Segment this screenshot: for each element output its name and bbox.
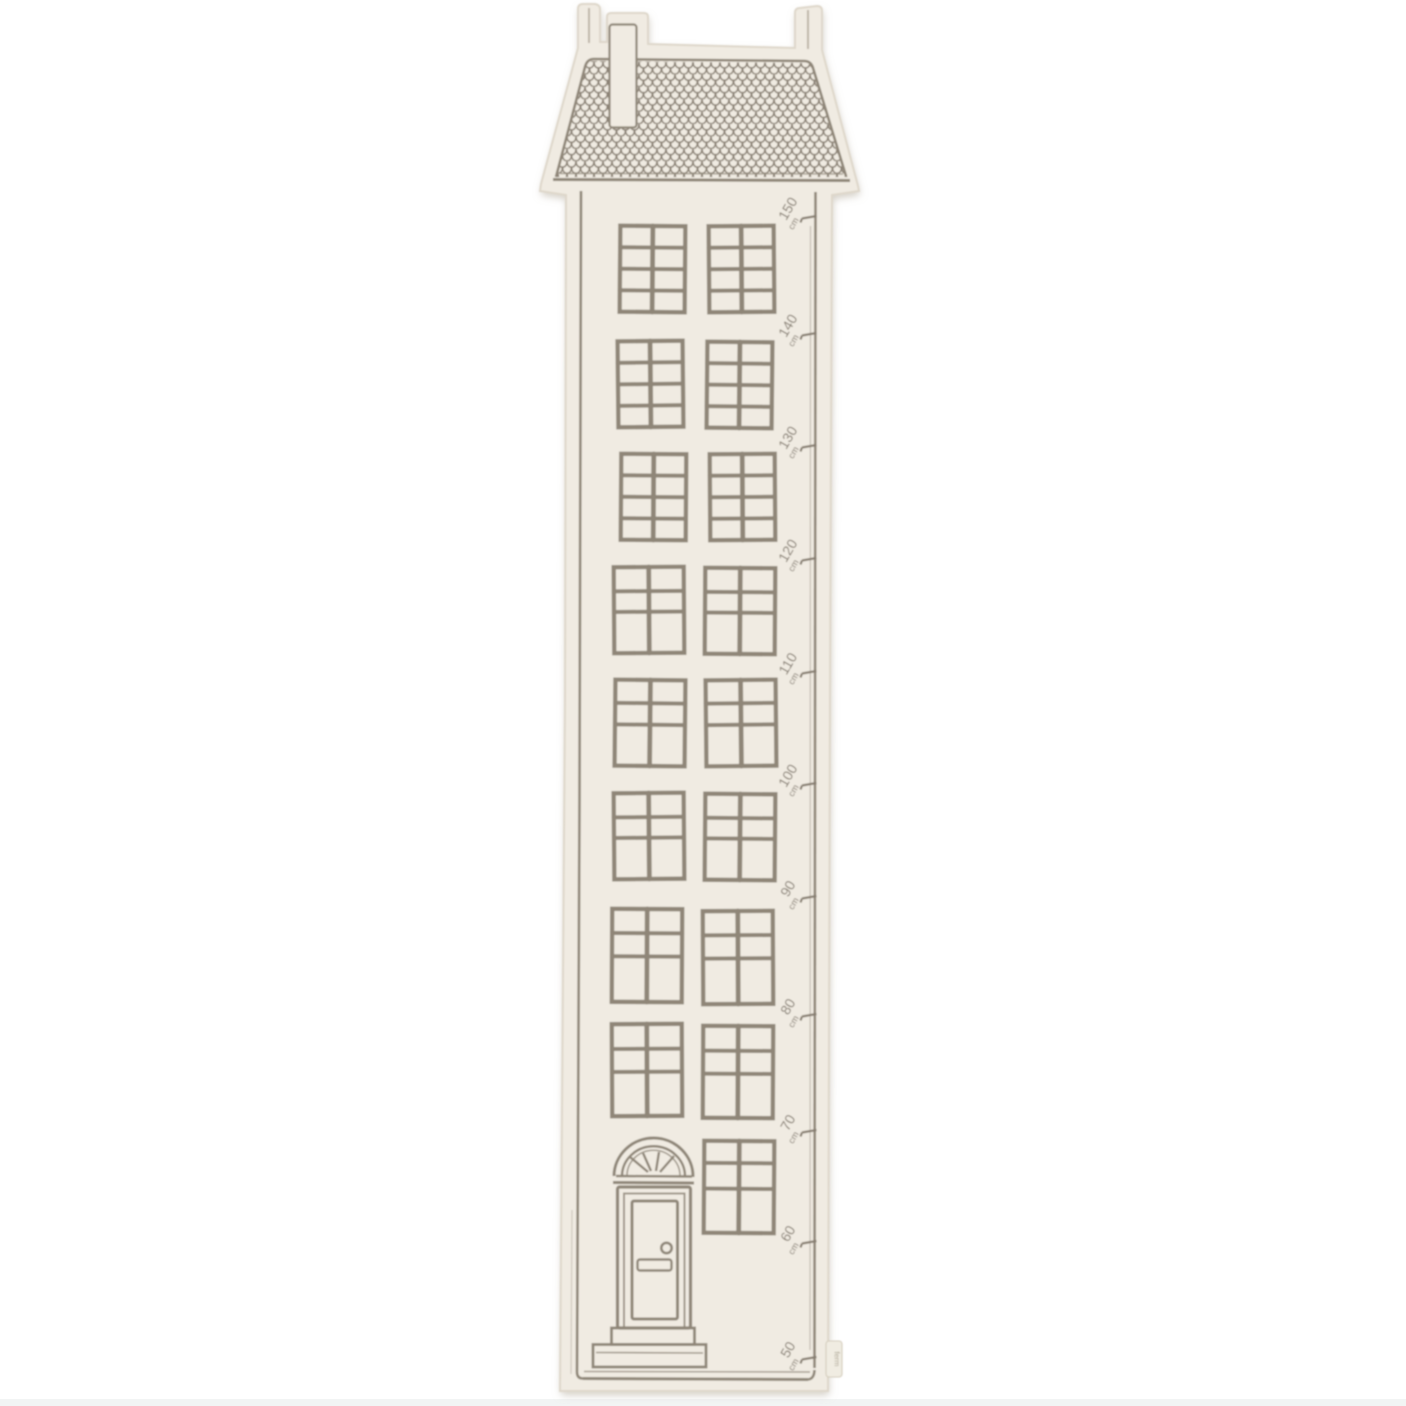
svg-text:ferm: ferm <box>833 1352 842 1367</box>
